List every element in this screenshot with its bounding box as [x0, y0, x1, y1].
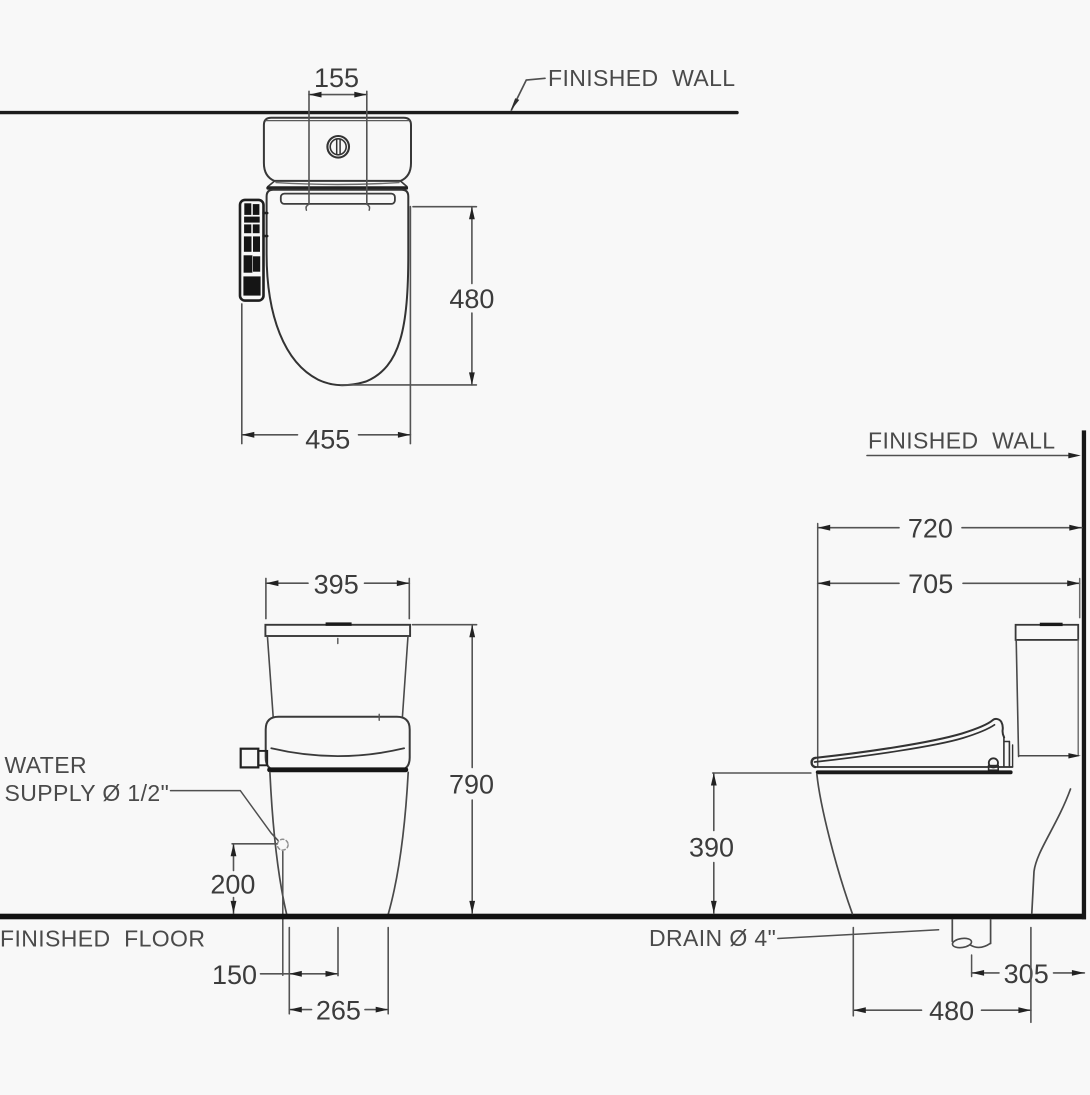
svg-text:305: 305	[1004, 959, 1049, 989]
svg-text:SUPPLY Ø 1/2": SUPPLY Ø 1/2"	[5, 780, 170, 806]
svg-text:390: 390	[689, 833, 734, 863]
svg-text:FINISHED WALL: FINISHED WALL	[548, 65, 736, 91]
svg-text:DRAIN Ø 4": DRAIN Ø 4"	[649, 925, 776, 951]
svg-text:720: 720	[908, 514, 953, 544]
svg-text:155: 155	[314, 63, 359, 93]
svg-text:395: 395	[314, 570, 359, 600]
svg-text:480: 480	[929, 996, 974, 1026]
svg-text:WATER: WATER	[5, 752, 88, 778]
svg-text:FINISHED WALL: FINISHED WALL	[868, 428, 1056, 454]
svg-text:480: 480	[449, 284, 494, 314]
svg-text:200: 200	[210, 870, 255, 900]
svg-text:455: 455	[305, 425, 350, 455]
svg-text:790: 790	[449, 770, 494, 800]
svg-text:265: 265	[316, 996, 361, 1026]
svg-text:150: 150	[212, 960, 257, 990]
svg-text:FINISHED FLOOR: FINISHED FLOOR	[0, 925, 205, 951]
svg-text:705: 705	[908, 569, 953, 599]
